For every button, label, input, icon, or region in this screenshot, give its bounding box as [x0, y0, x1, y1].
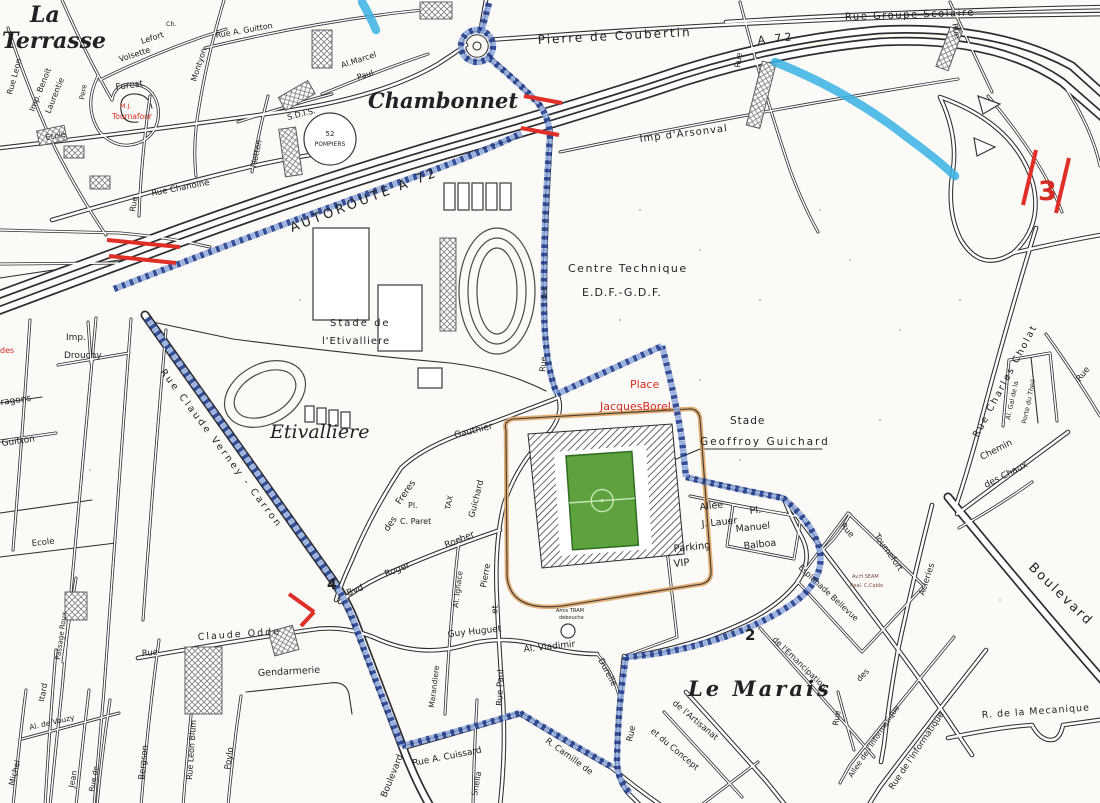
poi-label-stade-geoffroy-guichard: Geoffroy Guichard: [700, 436, 830, 448]
street-label-marandiere: Marandiere: [427, 665, 441, 709]
poi-label-pompiers: 52: [326, 130, 335, 138]
district-label-le-marais: Le Marais: [687, 676, 832, 701]
street-label-michel: Michel: [7, 759, 22, 786]
poi-label-tiny-note: debouche: [559, 615, 584, 621]
poi-label-tournafour: M.J.: [120, 102, 132, 110]
poi-label-tiny-note: Av.H SEAM: [852, 574, 879, 580]
street-label-concept: et du Concept: [648, 727, 701, 774]
football-pitch: [566, 451, 638, 549]
street-label-guitton: Guitton: [1, 434, 36, 449]
street-label-mecanique: R. de la Mecanique: [981, 702, 1090, 721]
poi-label-parking-vip: VIP: [673, 557, 690, 570]
place-label-c-paret: Pl.: [408, 501, 418, 510]
athletics-track-oval: [459, 228, 535, 354]
street-label-poylo: Poylo: [223, 747, 236, 771]
street-label-rue-a-cuissard: Rue A. Cuissard: [412, 746, 483, 769]
street-label-al-marcel-paul: Al.Marcel: [340, 50, 378, 70]
place-label-manuel-balboa: Manuel: [735, 520, 771, 535]
poi-label-ecole: Ecole: [31, 537, 55, 549]
street-label-al-marcel-paul: Paul: [356, 68, 375, 82]
street-label-lefort: Lefort: [140, 30, 165, 46]
scanned-street-map: La Terrasse Chambonnet Etivalliere Le Ma…: [0, 0, 1100, 803]
street-label-bvd-roger-rocher: Roger: [383, 561, 411, 580]
poi-label-pompiers: POMPIERS: [315, 141, 346, 148]
poi-label-centre-technique: Centre Technique: [568, 262, 688, 275]
street-label-rue-a-guitton: Rue A. Guitton: [215, 21, 274, 40]
street-label-snella: Snella: [470, 771, 483, 797]
street-label-bvd-roger-rocher: Rocher: [443, 530, 476, 551]
street-label-rue-paul-pierre-guichard: Guichard: [467, 479, 486, 519]
poi-label-tax: TAX: [443, 495, 455, 512]
street-label-acieries: Acieries: [917, 561, 937, 596]
street-label-rue-paul-pierre-guichard: Pierre: [479, 563, 493, 589]
marker-2: 2: [745, 626, 755, 644]
marker-3: 3: [1038, 176, 1057, 207]
district-label-la-terrasse: Terrasse: [2, 28, 106, 54]
street-label-rue-chanoine: Rue Chanoine: [151, 178, 211, 199]
marker-4: 4: [327, 577, 337, 593]
poi-label-tournafour: Tournafour: [111, 112, 153, 121]
street-label-rue-leon: Rue Leon: [5, 58, 23, 96]
street-label-bergson: Bergson: [137, 745, 151, 781]
interchange-island: [974, 138, 995, 156]
street-label-ch: Ch.: [166, 20, 177, 28]
street-label-rue-groupe-scolaire: Rue Groupe Scolaire: [845, 7, 975, 23]
district-label-chambonnet: Chambonnet: [368, 88, 518, 113]
etivalliere-sports-complex: [213, 183, 535, 441]
street-label-rue-edge: Rue: [1074, 365, 1092, 384]
street-label-imp-drouchy: Imp.: [66, 333, 86, 343]
place-label-jacques-borel: JacquesBorel: [599, 400, 671, 413]
street-label-durelle: Durelle: [595, 657, 618, 689]
street-label-bvd-roger-rocher: Bvd: [345, 583, 365, 599]
street-label-rue-claude-verney-carron: Rue Claude Verney - Carron: [158, 367, 285, 530]
street-label-rue-informatique: Rue de l'Informatique: [887, 710, 946, 791]
poi-label-tiny-note: Amis TRAM: [556, 608, 584, 614]
street-label-rue-vertical: Rue: [831, 710, 843, 727]
street-label-volsette: Volsette: [118, 45, 152, 64]
street-label-dragons: Dragons: [0, 394, 32, 409]
buildings-layer: [37, 2, 1000, 714]
poi-label-stade-etivalliere: Stade de: [330, 318, 391, 329]
street-label-imp-drouchy: Drouchy: [64, 351, 102, 361]
street-label-chemin-des-chaux: Chemin: [979, 438, 1014, 463]
street-label-des-vertical: des: [540, 287, 549, 300]
small-round-building: [561, 624, 575, 638]
street-label-rue-paul-pierre-guichard: et: [490, 604, 501, 614]
street-label-pere: Pere: [78, 84, 89, 100]
street-label-guy-huguet: Guy Huguet: [447, 624, 502, 640]
poi-label-stade-geoffroy-guichard: Stade: [730, 415, 765, 427]
street-label-rue-tournefort: Tournefort: [871, 531, 905, 574]
street-label-rue-vertical: Rue: [625, 725, 638, 743]
street-label-allee-j-lauer: Allee: [699, 500, 724, 513]
street-label-rue-claude-odde: Rue: [142, 648, 159, 659]
street-label-boulevard: Boulevard: [1025, 560, 1096, 629]
street-label-itard: Itard: [37, 682, 49, 702]
street-label-des: des: [382, 515, 400, 534]
poi-label-gendarmerie: Gendarmerie: [258, 665, 321, 679]
street-label-gauthier: Gauthier: [453, 422, 494, 441]
place-label-manuel-balboa: Balboa: [743, 538, 777, 552]
poi-label-tiny-note: Real. C.Cable: [850, 583, 883, 589]
street-label-rue-vertical: Rue: [538, 356, 548, 372]
place-label-manuel-balboa: Pl.: [749, 505, 761, 517]
place-label-c-paret: C. Paret: [400, 517, 431, 526]
district-label-la-terrasse: La: [29, 2, 60, 28]
place-label-jacques-borel: Place: [630, 378, 659, 391]
poi-label-stade-etivalliere: l'Etivalliere: [322, 336, 390, 347]
street-label-porte-du-theil: Porte du Theil: [1020, 379, 1037, 425]
street-label-boulevard: Boulevard: [380, 753, 406, 799]
poi-label-edf-gdf: E.D.F.-G.D.F.: [582, 286, 662, 299]
place-label-forest: Forest: [115, 79, 144, 93]
street-label-des-fragment: des: [855, 667, 871, 684]
street-label-rue-paul-pierre-guichard: Rue Paul: [495, 669, 506, 706]
district-label-etivalliere: Etivalliere: [269, 421, 369, 443]
street-label-red-fragment: des: [0, 346, 14, 355]
map-canvas: La Terrasse Chambonnet Etivalliere Le Ma…: [0, 0, 1100, 803]
street-label-al-ignace: Al. Ignace: [451, 570, 464, 608]
street-label-chemin-des-chaux: des Chaux: [983, 460, 1030, 491]
street-label-pierre-de-coubertin: Pierre de Coubertin: [537, 25, 692, 47]
street-label-rue-leon-blum: Rue Leon Blum: [185, 719, 198, 780]
fire-station-building: [304, 113, 356, 165]
